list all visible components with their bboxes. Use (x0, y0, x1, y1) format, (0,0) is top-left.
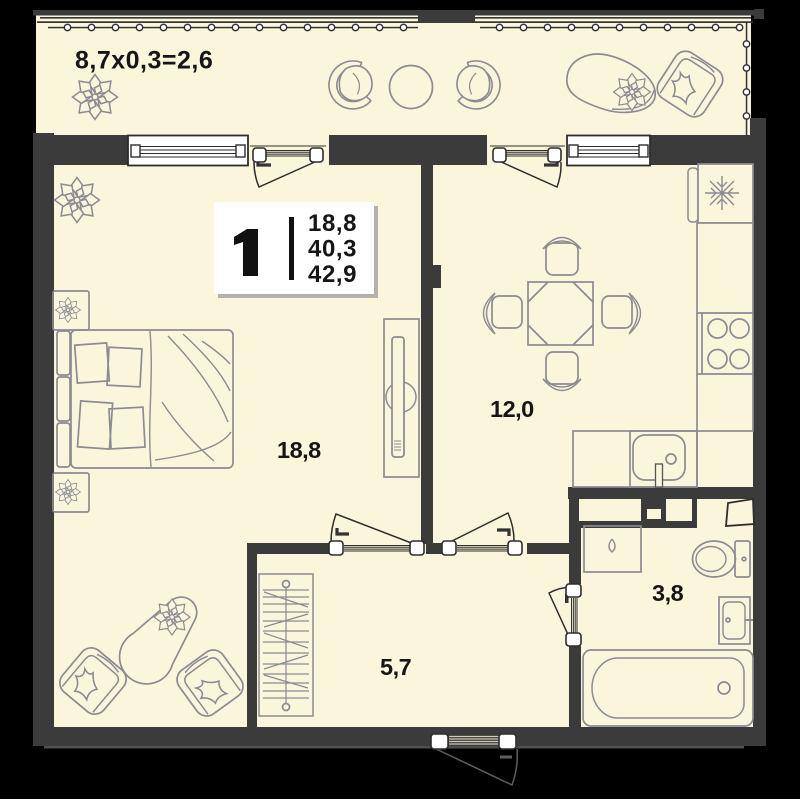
svg-text:18,8: 18,8 (308, 210, 357, 237)
svg-text:8,7x0,3=2,6: 8,7x0,3=2,6 (75, 47, 213, 75)
svg-text:3,8: 3,8 (652, 580, 684, 606)
svg-text:40,3: 40,3 (308, 236, 357, 263)
svg-text:42,9: 42,9 (308, 261, 357, 288)
svg-text:18,8: 18,8 (277, 437, 321, 463)
svg-text:12,0: 12,0 (490, 396, 534, 422)
svg-text:5,7: 5,7 (380, 654, 412, 680)
